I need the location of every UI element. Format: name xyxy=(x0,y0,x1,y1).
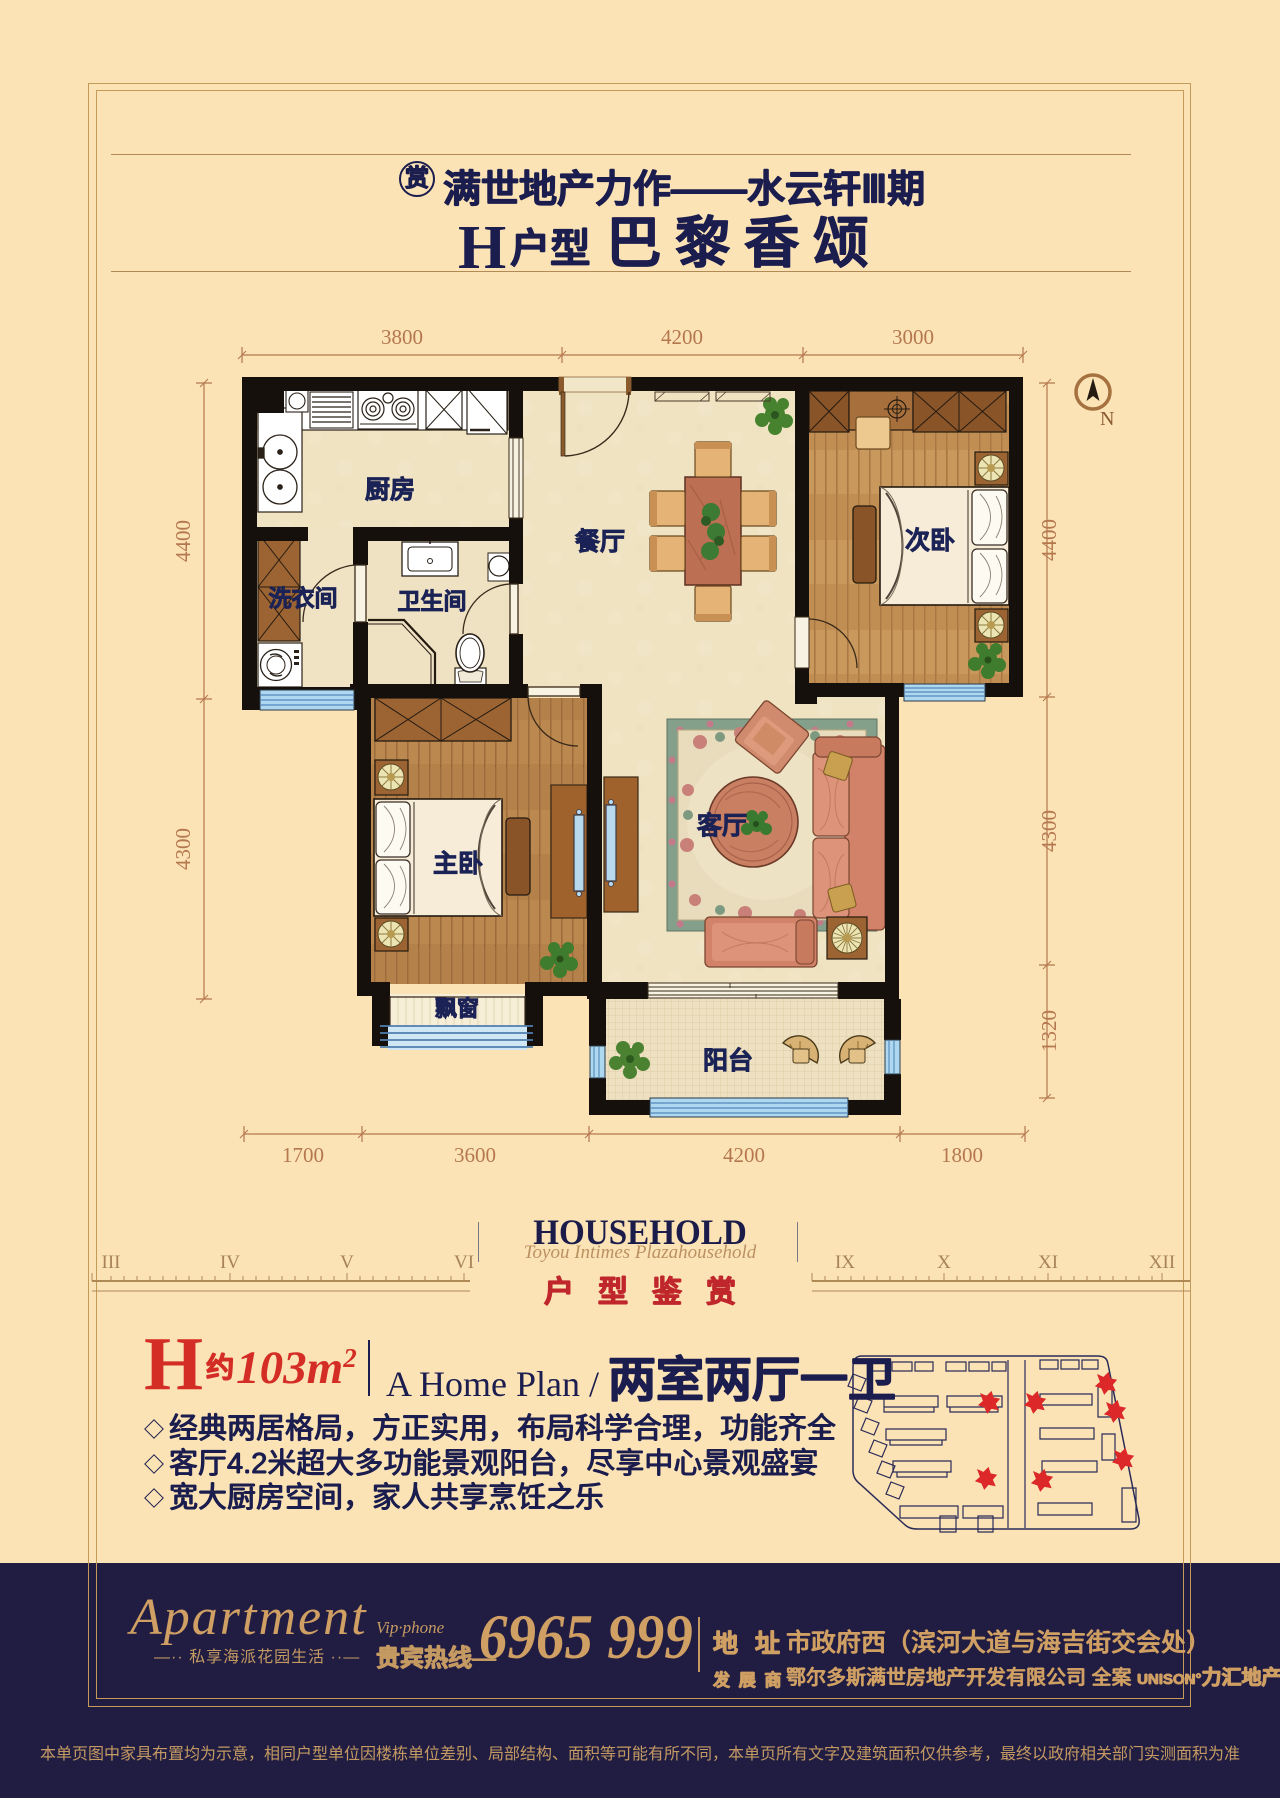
svg-text:1320: 1320 xyxy=(1037,1010,1061,1052)
svg-text:厨房: 厨房 xyxy=(365,475,415,504)
svg-text:主卧: 主卧 xyxy=(433,850,483,878)
svg-text:4400: 4400 xyxy=(1037,519,1061,561)
svg-text:次卧: 次卧 xyxy=(905,527,955,555)
svg-text:3000: 3000 xyxy=(892,325,934,349)
svg-text:4300: 4300 xyxy=(171,828,195,870)
svg-text:4200: 4200 xyxy=(723,1143,765,1167)
svg-text:V: V xyxy=(340,1252,354,1273)
svg-text:阳台: 阳台 xyxy=(703,1046,753,1075)
svg-text:3600: 3600 xyxy=(454,1143,496,1167)
svg-text:洗衣间: 洗衣间 xyxy=(269,585,338,611)
svg-text:N: N xyxy=(1100,408,1114,430)
svg-text:4300: 4300 xyxy=(1037,810,1061,852)
svg-text:客厅: 客厅 xyxy=(697,811,747,840)
svg-text:XI: XI xyxy=(1038,1252,1058,1273)
svg-text:IV: IV xyxy=(220,1252,240,1273)
svg-text:3800: 3800 xyxy=(381,325,423,349)
svg-text:飘窗: 飘窗 xyxy=(435,996,479,1021)
svg-text:4200: 4200 xyxy=(661,325,703,349)
svg-text:X: X xyxy=(937,1252,951,1273)
svg-text:XII: XII xyxy=(1149,1252,1175,1273)
svg-text:卫生间: 卫生间 xyxy=(398,588,467,614)
svg-text:III: III xyxy=(102,1252,121,1273)
svg-text:1800: 1800 xyxy=(941,1143,983,1167)
svg-text:1700: 1700 xyxy=(282,1143,324,1167)
svg-text:4400: 4400 xyxy=(171,520,195,562)
svg-text:餐厅: 餐厅 xyxy=(575,528,625,556)
